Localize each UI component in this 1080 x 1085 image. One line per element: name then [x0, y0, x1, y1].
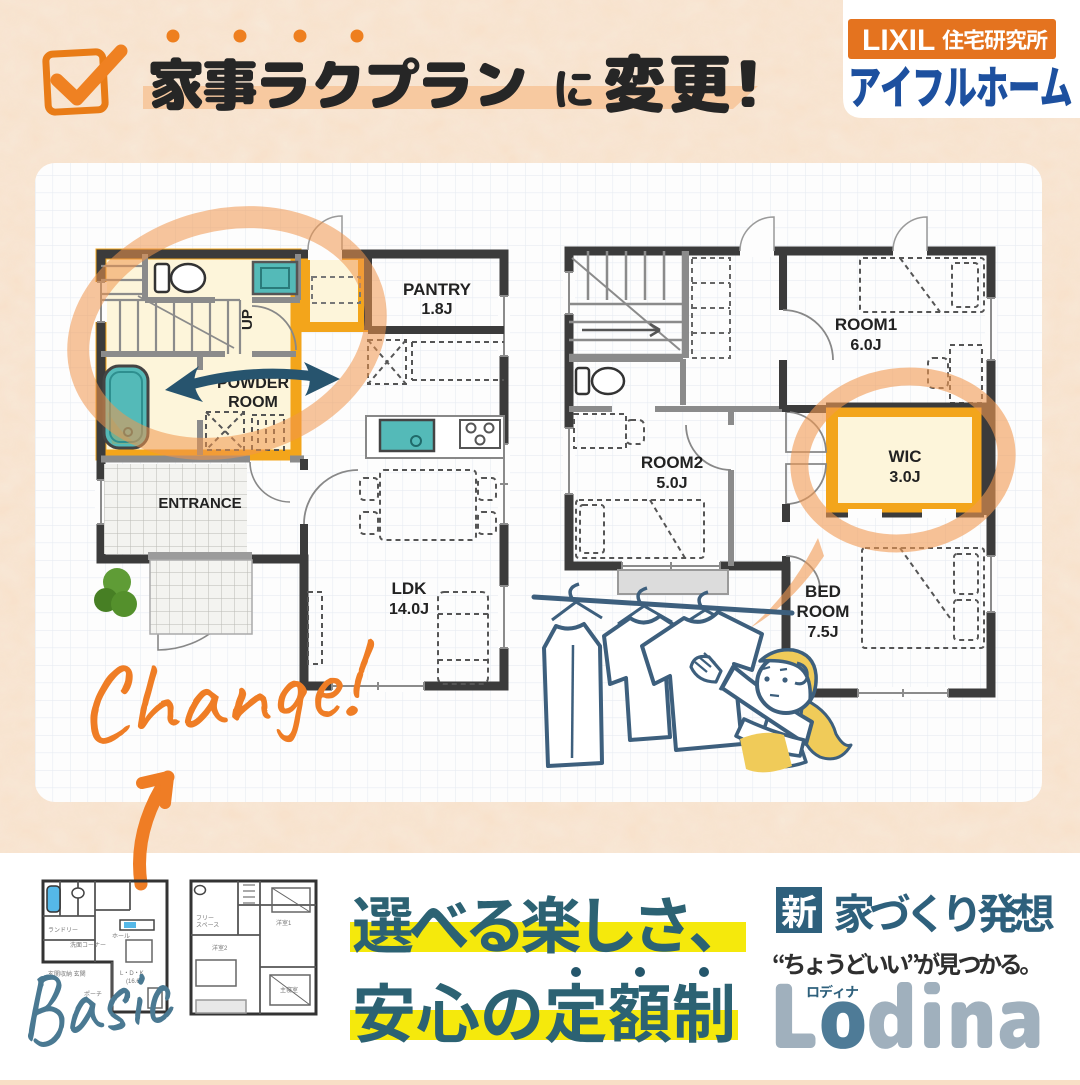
svg-text:1.8J: 1.8J [421, 301, 452, 318]
svg-text:14.0J: 14.0J [389, 601, 429, 618]
svg-text:UP: UP [239, 309, 256, 330]
svg-text:7.5J: 7.5J [807, 624, 838, 641]
svg-text:3.0J: 3.0J [889, 469, 920, 486]
svg-text:主寝室: 主寝室 [280, 986, 298, 994]
svg-text:洋室2: 洋室2 [212, 944, 228, 952]
svg-text:LDK: LDK [392, 579, 428, 598]
svg-text:ROOM2: ROOM2 [641, 453, 703, 472]
svg-text:6.0J: 6.0J [850, 337, 881, 354]
svg-text:ENTRANCE: ENTRANCE [158, 495, 241, 512]
svg-text:LIXIL: LIXIL [862, 24, 935, 57]
svg-text:ランドリー: ランドリー [48, 927, 78, 934]
svg-text:ROOM: ROOM [797, 602, 850, 621]
svg-text:ホール: ホール [112, 933, 130, 940]
svg-text:洋室1: 洋室1 [276, 919, 292, 927]
svg-text:フリー: フリー [196, 915, 214, 922]
svg-text:5.0J: 5.0J [656, 475, 687, 492]
svg-text:ROOM1: ROOM1 [835, 315, 897, 334]
svg-text:ROOM: ROOM [228, 394, 278, 411]
svg-text:洗面コーナー: 洗面コーナー [70, 941, 106, 949]
svg-text:BED: BED [805, 582, 841, 601]
svg-text:ポーチ: ポーチ [84, 990, 102, 998]
svg-text:PANTRY: PANTRY [403, 280, 472, 299]
svg-text:WIC: WIC [888, 447, 921, 466]
svg-text:スペース: スペース [196, 922, 219, 929]
